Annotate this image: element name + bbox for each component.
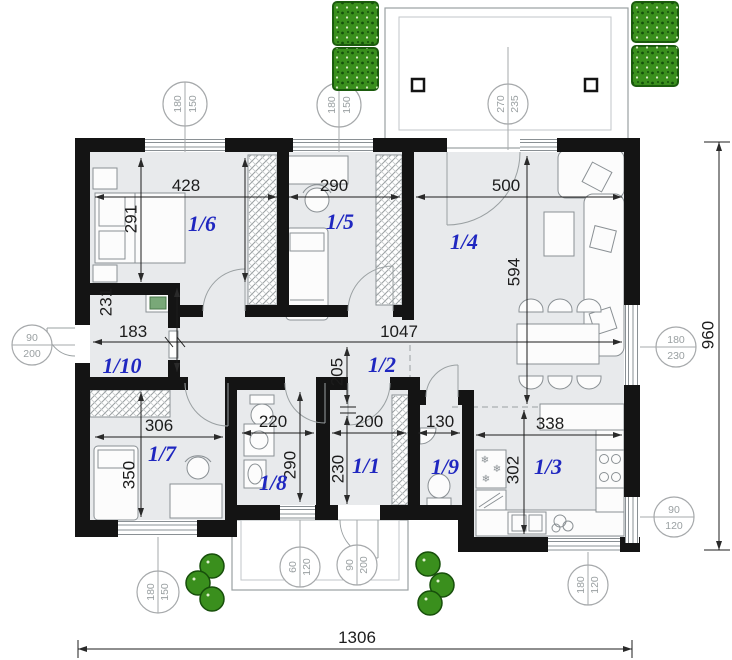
marker-kitchen-bottom-window: 180 120	[568, 552, 608, 605]
wall-segment	[393, 305, 404, 317]
dim-room3-height: 302	[504, 456, 523, 484]
marker-value: 150	[159, 583, 171, 601]
porch	[232, 520, 408, 590]
marker-value: 235	[509, 95, 521, 113]
wall-segment	[458, 390, 474, 405]
dim-hall-height: 205	[328, 358, 347, 386]
nightstand	[93, 168, 117, 189]
svg-text:❄: ❄	[493, 464, 501, 475]
window-terrace-side	[520, 139, 557, 151]
dining-table	[517, 324, 599, 364]
marker-entry-door: 90 200	[12, 325, 75, 365]
wall-segment	[316, 377, 330, 510]
desk	[170, 484, 222, 518]
wall-segment	[408, 390, 426, 405]
marker-value: 90	[668, 504, 680, 516]
terrace	[385, 8, 628, 148]
room-label-1-5: 1/5	[326, 209, 354, 234]
dim-room1-width: 200	[355, 412, 383, 431]
wall-segment	[624, 138, 640, 305]
hedge-bush	[333, 2, 378, 45]
dim-hall-width: 1047	[380, 322, 418, 341]
dim-room1-height: 230	[329, 455, 348, 483]
dim-total-height: 960	[699, 321, 718, 349]
marker-kitchen-side-window: 90 120	[640, 497, 694, 537]
dim-room5-width: 290	[320, 176, 348, 195]
wardrobe-room1	[392, 395, 408, 505]
wall-segment	[225, 138, 293, 152]
wall-segment	[168, 283, 180, 328]
hedge-bush	[632, 2, 678, 42]
marker-value: 180	[575, 576, 587, 594]
marker-value: 60	[287, 561, 299, 573]
marker-value: 180	[145, 583, 157, 601]
marker-value: 200	[23, 348, 41, 360]
room-label-1-6: 1/6	[188, 211, 216, 236]
floor-plan-drawing: ❄ ❄ ❄	[0, 0, 732, 660]
marker-value: 180	[326, 96, 338, 114]
dim-room8-width: 220	[259, 412, 287, 431]
marker-bed7-window: 180 150	[137, 537, 179, 613]
stove	[596, 450, 624, 488]
marker-value: 180	[667, 334, 685, 346]
terrace-post	[412, 79, 424, 91]
wall-segment	[88, 377, 188, 390]
room-label-1-10: 1/10	[102, 353, 141, 378]
terrace-post	[585, 79, 597, 91]
hedge-bush	[632, 46, 678, 86]
round-bush-cluster-right	[416, 552, 454, 615]
marker-value: 150	[341, 96, 353, 114]
dim-room9-width: 130	[426, 412, 454, 431]
dim-room7-height: 350	[120, 461, 139, 489]
kitchen-counter	[476, 510, 624, 536]
wall-segment	[462, 405, 474, 537]
hedge-bush	[333, 48, 378, 90]
wardrobe-room5	[376, 155, 402, 305]
wall-segment	[225, 377, 237, 537]
nightstand	[93, 265, 117, 282]
wall-segment	[458, 537, 548, 552]
room-label-1-7: 1/7	[148, 441, 177, 466]
room-label-1-2: 1/2	[368, 352, 396, 377]
window-bath	[280, 506, 315, 519]
dim-room10-height: 231	[97, 288, 116, 316]
dim-room7-width: 306	[145, 416, 173, 435]
window-living	[625, 305, 639, 385]
wall-segment	[408, 390, 420, 520]
window-kitchen-bottom	[548, 538, 620, 551]
room-label-1-1: 1/1	[352, 453, 380, 478]
wall-segment	[245, 305, 348, 317]
dim-entry-width: 183	[119, 322, 147, 341]
dim-total-width: 1306	[338, 628, 376, 647]
marker-value: 120	[301, 558, 313, 576]
fridge: ❄ ❄ ❄	[476, 450, 506, 488]
svg-text:❄: ❄	[481, 455, 489, 466]
floor-plan-canvas: ❄ ❄ ❄	[0, 0, 732, 660]
wall-segment	[75, 363, 90, 537]
marker-value: 90	[26, 332, 38, 344]
sofa-cushion	[590, 226, 617, 253]
marker-living-window: 180 230	[640, 327, 696, 367]
room-label-1-9: 1/9	[431, 454, 459, 479]
wardrobe-room6	[248, 155, 277, 305]
marker-value: 180	[172, 95, 184, 113]
wall-segment	[237, 377, 285, 390]
marker-value: 230	[667, 350, 685, 362]
wall-segment	[277, 152, 289, 317]
marker-value: 200	[358, 556, 370, 574]
wall-segment	[237, 505, 280, 520]
wardrobe-room7	[90, 390, 170, 417]
room-label-1-4: 1/4	[450, 229, 478, 254]
wall-segment	[373, 138, 447, 152]
dim-room4-width: 500	[492, 176, 520, 195]
wall-segment	[180, 305, 203, 317]
cabinet	[476, 490, 506, 510]
wall-segment	[75, 138, 90, 325]
window-kitchen-side	[625, 497, 639, 543]
dim-room6-height: 291	[122, 205, 141, 233]
marker-value: 120	[589, 576, 601, 594]
wall-segment	[75, 520, 118, 537]
marker-value: 150	[187, 95, 199, 113]
wall-segment	[624, 385, 640, 497]
room-label-1-3: 1/3	[534, 454, 562, 479]
marker-value: 270	[495, 95, 507, 113]
marker-value: 120	[665, 520, 683, 532]
coffee-table	[544, 212, 574, 256]
dim-room4-height: 594	[505, 258, 524, 286]
window-room5	[293, 139, 373, 151]
svg-text:❄: ❄	[482, 474, 490, 485]
counter-right	[596, 428, 624, 512]
marker-value: 90	[344, 559, 356, 571]
round-bush-cluster-left	[186, 554, 224, 611]
dim-room6-width: 428	[172, 176, 200, 195]
room-label-1-8: 1/8	[259, 470, 287, 495]
wall-segment	[390, 377, 420, 390]
wall-segment	[402, 152, 414, 320]
dim-room3-width: 338	[536, 414, 564, 433]
window-room7	[118, 521, 197, 535]
